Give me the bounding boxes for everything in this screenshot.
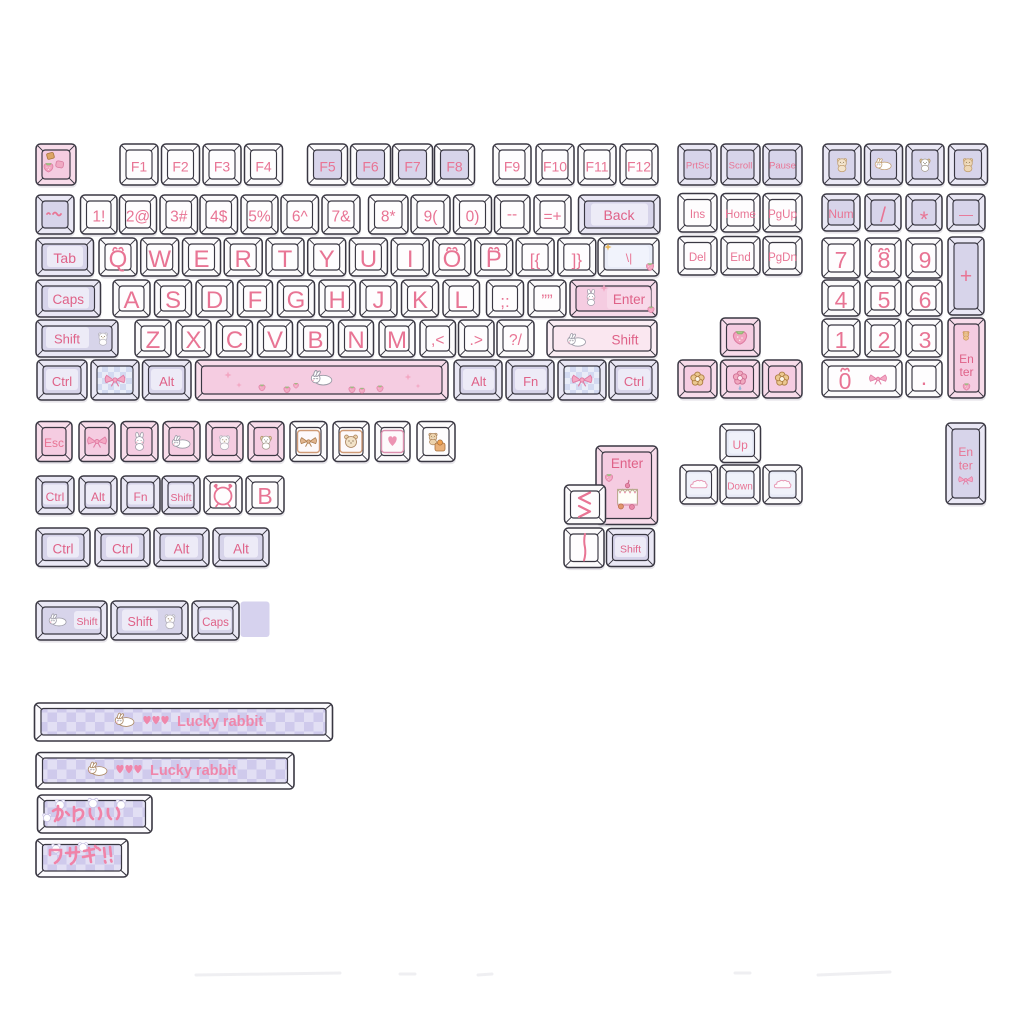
- svg-text:Alt: Alt: [159, 374, 175, 389]
- svg-text:Enter: Enter: [613, 292, 646, 307]
- svg-text:W: W: [148, 246, 171, 273]
- svg-text:F12: F12: [627, 159, 651, 175]
- svg-text:L: L: [455, 287, 468, 314]
- svg-text:Fn: Fn: [133, 490, 147, 504]
- svg-text:Pause: Pause: [769, 161, 796, 172]
- svg-text:O: O: [443, 246, 462, 273]
- svg-text:””: ””: [541, 291, 553, 310]
- svg-text:N: N: [347, 327, 364, 354]
- svg-text:Z: Z: [146, 327, 161, 354]
- svg-text:8*: 8*: [381, 209, 396, 226]
- svg-text:+: +: [960, 265, 972, 288]
- svg-text:--: --: [507, 206, 517, 223]
- svg-text:Enter: Enter: [611, 456, 644, 471]
- svg-text:Q: Q: [109, 246, 128, 273]
- svg-text:3: 3: [919, 327, 932, 353]
- svg-text:J: J: [373, 287, 385, 314]
- svg-text:7: 7: [835, 247, 848, 273]
- svg-text:7&: 7&: [332, 209, 352, 226]
- svg-text:1: 1: [835, 327, 848, 353]
- svg-text:Tab: Tab: [53, 250, 76, 266]
- svg-text:—: —: [959, 206, 973, 222]
- svg-text:Alt: Alt: [471, 374, 487, 389]
- svg-text:6^: 6^: [292, 209, 309, 226]
- svg-text:Lucky rabbit: Lucky rabbit: [177, 714, 263, 730]
- svg-text:U: U: [360, 246, 377, 273]
- svg-text:Ctrl: Ctrl: [624, 374, 644, 389]
- svg-text:*: *: [920, 207, 929, 232]
- svg-text:X: X: [185, 327, 201, 354]
- svg-text:Shift: Shift: [76, 616, 97, 628]
- svg-text:Ctrl: Ctrl: [46, 490, 65, 504]
- svg-text:F6: F6: [362, 159, 379, 175]
- svg-text:\|: \|: [626, 251, 632, 265]
- svg-text:Shift: Shift: [620, 544, 641, 556]
- svg-text:.: .: [921, 364, 927, 390]
- svg-text:F7: F7: [404, 159, 421, 175]
- svg-text:F10: F10: [543, 159, 567, 175]
- svg-text:T: T: [278, 246, 293, 273]
- svg-text:B: B: [307, 327, 323, 354]
- svg-text:M: M: [387, 327, 407, 354]
- svg-text:Shift: Shift: [54, 332, 80, 347]
- svg-text:[{: [{: [530, 251, 541, 270]
- svg-text:F2: F2: [172, 159, 189, 175]
- svg-text:A: A: [123, 287, 139, 314]
- svg-text:ter: ter: [959, 365, 973, 379]
- svg-text:Fn: Fn: [523, 374, 538, 389]
- svg-text:Home: Home: [725, 209, 756, 221]
- svg-text:Y: Y: [319, 246, 335, 273]
- svg-text:H: H: [329, 287, 346, 314]
- svg-text:4: 4: [835, 287, 848, 313]
- svg-text:End: End: [730, 252, 750, 264]
- svg-text:En: En: [959, 352, 974, 366]
- svg-text:2@: 2@: [126, 209, 150, 226]
- svg-text:Alt: Alt: [174, 542, 190, 557]
- svg-text:V: V: [267, 327, 283, 354]
- svg-text:Back: Back: [603, 207, 635, 223]
- svg-text:Esc: Esc: [44, 436, 64, 450]
- svg-text:C: C: [226, 327, 243, 354]
- svg-text:ter: ter: [959, 459, 973, 473]
- svg-text:]}: ]}: [572, 251, 583, 270]
- svg-text:Caps: Caps: [202, 617, 229, 629]
- svg-text:K: K: [412, 287, 428, 314]
- svg-text:.>: .>: [470, 332, 483, 349]
- svg-text:3#: 3#: [170, 209, 188, 226]
- svg-text:0: 0: [839, 368, 852, 394]
- svg-text:Del: Del: [689, 252, 706, 264]
- svg-text:1!: 1!: [92, 209, 105, 226]
- svg-text:,<: ,<: [431, 332, 444, 349]
- svg-text:F4: F4: [255, 159, 272, 175]
- svg-text:F5: F5: [319, 159, 336, 175]
- svg-text:Alt: Alt: [91, 490, 106, 504]
- svg-text:Ins: Ins: [690, 209, 706, 221]
- svg-text:Shift: Shift: [170, 492, 191, 504]
- svg-text:F3: F3: [214, 159, 231, 175]
- svg-text:;:: ;:: [500, 292, 509, 311]
- svg-text:I: I: [407, 246, 414, 273]
- svg-text:E: E: [193, 246, 209, 273]
- svg-text:S: S: [165, 287, 181, 314]
- svg-text:PgUp: PgUp: [768, 209, 797, 221]
- svg-text:Scroll: Scroll: [729, 161, 753, 172]
- svg-text:2: 2: [878, 327, 891, 353]
- svg-text:Down: Down: [727, 482, 753, 493]
- svg-text:F: F: [248, 287, 263, 314]
- svg-text:PgDn: PgDn: [768, 252, 797, 264]
- svg-text:5%: 5%: [248, 209, 271, 226]
- svg-text:F11: F11: [585, 159, 608, 175]
- svg-text:F8: F8: [446, 159, 463, 175]
- svg-text:Ctrl: Ctrl: [112, 542, 133, 557]
- svg-text:Caps: Caps: [52, 292, 84, 307]
- svg-text:9(: 9(: [424, 209, 439, 226]
- svg-text:Alt: Alt: [233, 542, 249, 557]
- svg-text:Ctrl: Ctrl: [52, 374, 72, 389]
- svg-text:En: En: [958, 445, 973, 459]
- svg-text:Shift: Shift: [127, 615, 153, 629]
- svg-text:Up: Up: [733, 438, 749, 452]
- svg-text:F1: F1: [131, 159, 148, 175]
- svg-text:Lucky rabbit: Lucky rabbit: [150, 763, 236, 779]
- svg-text:Num: Num: [828, 207, 853, 221]
- svg-text:0): 0): [466, 209, 480, 226]
- svg-text:/: /: [880, 204, 886, 227]
- svg-text:D: D: [206, 287, 223, 314]
- svg-text:F9: F9: [504, 159, 521, 175]
- svg-text:Ctrl: Ctrl: [53, 542, 74, 557]
- svg-text:Shift: Shift: [611, 333, 638, 348]
- svg-text:=+: =+: [543, 209, 561, 226]
- svg-text:PrtSc: PrtSc: [686, 161, 709, 172]
- svg-text:R: R: [235, 246, 252, 273]
- svg-text:9: 9: [919, 247, 932, 273]
- svg-text:G: G: [287, 287, 306, 314]
- svg-text:4$: 4$: [210, 209, 228, 226]
- svg-text:5: 5: [878, 287, 891, 313]
- svg-text:B: B: [257, 483, 272, 509]
- svg-text:6: 6: [919, 287, 932, 313]
- svg-text:?/: ?/: [509, 332, 523, 349]
